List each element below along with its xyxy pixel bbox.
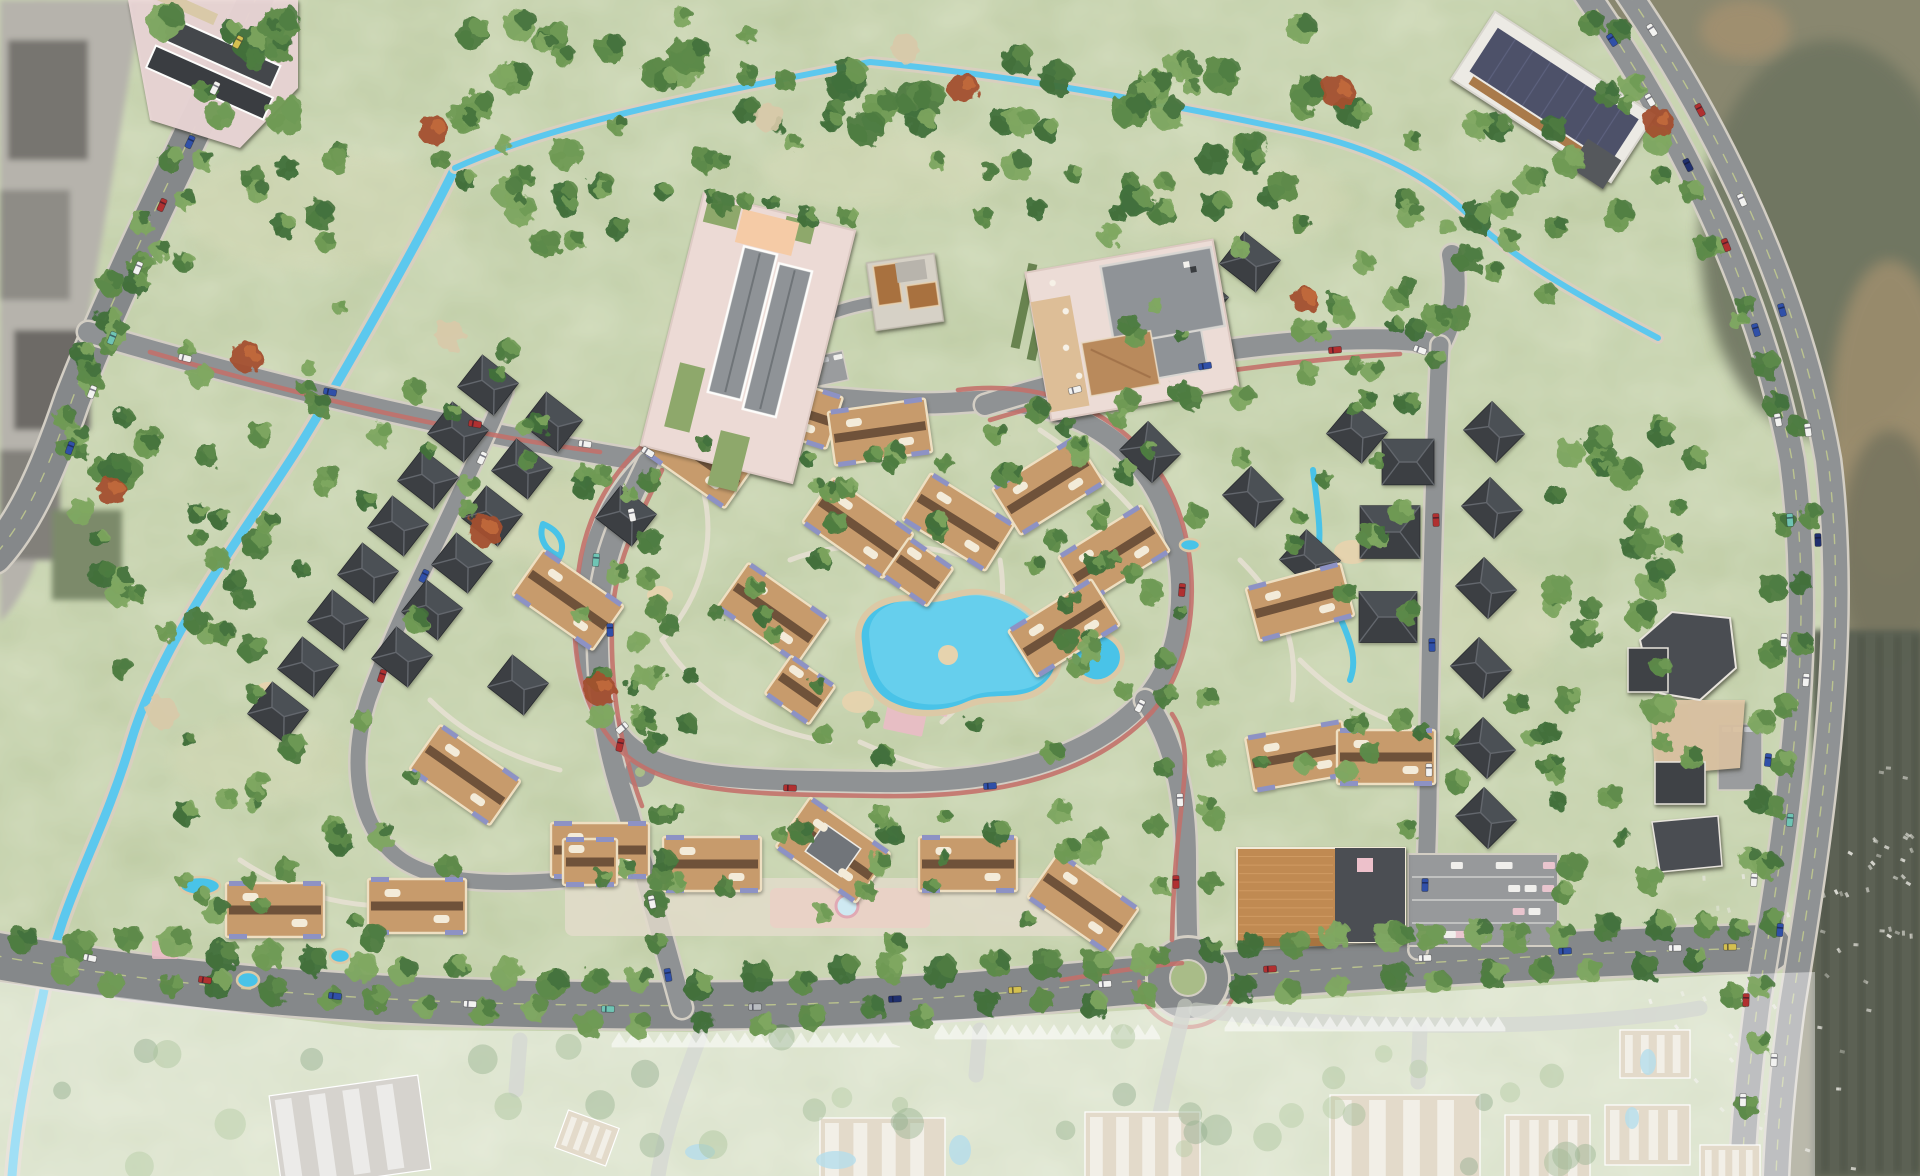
tree-crown: [1114, 470, 1125, 481]
car-body: [1786, 513, 1793, 526]
tree-crown: [1397, 610, 1409, 622]
tree-crown: [1360, 398, 1369, 407]
tree-crown: [1484, 270, 1494, 280]
parking-stall-car: [1543, 862, 1555, 869]
tree-crown: [1537, 292, 1547, 302]
tree-crown: [1645, 923, 1660, 938]
tree-crown: [1680, 190, 1692, 202]
car-body: [1802, 673, 1810, 687]
car: [1178, 583, 1186, 597]
tree-crown: [1024, 408, 1036, 420]
tree-crown: [709, 612, 717, 620]
tree-crown: [1752, 362, 1766, 376]
tree-crown: [369, 833, 382, 846]
tree-crown: [810, 484, 817, 491]
car: [578, 440, 592, 448]
tree-crown: [1337, 108, 1352, 123]
tree-crown: [197, 454, 209, 466]
car-body: [607, 623, 614, 636]
tree-crown: [1480, 972, 1494, 986]
car: [748, 1004, 761, 1011]
car-body: [1173, 875, 1180, 888]
tree-crown: [1172, 610, 1180, 618]
tree-crown: [1625, 517, 1637, 529]
tree-crown: [264, 45, 278, 59]
tree-crown: [1644, 139, 1658, 153]
tree-crown: [1545, 493, 1555, 503]
apartment-corner-trim: [445, 877, 463, 882]
tree-crown: [115, 417, 125, 427]
car-body: [1771, 1053, 1778, 1066]
tree-crown: [639, 478, 651, 490]
tree-crown: [908, 119, 922, 133]
car-windshield: [1787, 817, 1793, 818]
tree-crown: [1028, 564, 1037, 573]
tree-crown: [882, 462, 890, 470]
checker-tile: [1190, 266, 1197, 273]
car: [607, 623, 614, 636]
tree-crown: [609, 123, 618, 132]
tree-crown: [1040, 75, 1057, 92]
tree-crown: [1335, 591, 1346, 602]
tree-crown: [113, 667, 123, 677]
tree-crown: [1721, 994, 1733, 1006]
tree-crown: [1238, 944, 1251, 957]
car-windshield: [1202, 363, 1203, 369]
tree-crown: [207, 952, 223, 968]
tree-crown: [361, 935, 374, 948]
tree-crown: [754, 613, 764, 623]
tree-crown: [1740, 857, 1751, 868]
tree-crown: [1347, 408, 1355, 416]
apartment-corner-trim: [628, 821, 646, 826]
tree-crown: [1557, 696, 1570, 709]
villa-pool: [237, 972, 259, 988]
tree-crown: [1196, 696, 1207, 707]
tree-crown: [1119, 322, 1129, 332]
apartment-corner-trim: [554, 821, 572, 826]
context-tree-row: [1894, 636, 1901, 1172]
apartment-corner-trim: [566, 882, 584, 887]
tree-crown: [1078, 850, 1091, 863]
car: [1740, 1093, 1747, 1106]
apartment-roof-band: [666, 860, 758, 869]
car: [1328, 346, 1342, 354]
tree-crown: [573, 613, 582, 622]
tree-crown: [193, 158, 203, 168]
tree-crown: [1694, 923, 1706, 935]
tree-crown: [537, 981, 553, 997]
car: [1764, 753, 1772, 767]
tree-crown: [1438, 226, 1446, 234]
tree-crown: [1523, 735, 1532, 744]
tree-crown: [1045, 538, 1056, 549]
tree-crown: [1092, 522, 1100, 530]
tree-crown: [704, 195, 711, 202]
tree-crown: [1613, 836, 1622, 845]
tree-crown: [646, 606, 657, 617]
tree-crown: [583, 978, 596, 991]
tree-crown: [491, 373, 499, 381]
tree-crown: [177, 878, 185, 886]
apartment-roof-band: [1340, 753, 1432, 762]
tree-crown: [56, 445, 67, 456]
tree-crown: [1571, 630, 1586, 645]
tree-crown: [457, 179, 467, 189]
tree-crown: [1594, 91, 1607, 104]
tree-crown: [1062, 847, 1072, 857]
tree-crown: [1750, 720, 1763, 733]
car-body: [1433, 513, 1440, 526]
tree-crown: [1654, 740, 1663, 749]
tree-crown: [471, 1010, 485, 1024]
tree-crown: [390, 969, 404, 983]
car: [1802, 673, 1810, 687]
tree-crown: [1749, 1041, 1760, 1052]
apartment-vent: [1403, 766, 1419, 774]
autumn-tree-crown: [1336, 81, 1350, 95]
tree-crown: [1395, 933, 1405, 943]
tree-crown: [1664, 541, 1674, 551]
tree-crown: [1292, 89, 1309, 106]
tree-crown: [1333, 306, 1343, 316]
tree-crown: [1649, 431, 1662, 444]
tree-crown: [242, 541, 257, 556]
tree-crown: [1255, 761, 1262, 768]
apartment-corner-trim: [740, 835, 758, 840]
tree-crown: [257, 521, 269, 533]
blossom-tree: [755, 103, 785, 133]
tree-crown: [862, 1005, 874, 1017]
tree-crown: [811, 683, 819, 691]
tree-crown: [207, 113, 220, 126]
tree-crown: [1388, 509, 1401, 522]
tree-crown: [243, 878, 250, 885]
car: [1776, 923, 1783, 936]
tree-crown: [357, 499, 367, 509]
big-villa: [1382, 439, 1434, 485]
tree-crown: [1558, 452, 1571, 465]
apartment-corner-trim: [566, 837, 584, 842]
tree-crown: [1231, 248, 1240, 257]
tree-crown: [1599, 794, 1612, 807]
tree-crown: [190, 375, 202, 387]
tree-crown: [1546, 224, 1557, 235]
tree-crown: [1043, 751, 1054, 762]
tree-crown: [1750, 985, 1761, 996]
tree-crown: [1346, 364, 1355, 373]
tree-crown: [505, 22, 521, 38]
tree-crown: [814, 732, 824, 742]
tree-crown: [1242, 159, 1254, 171]
tree-crown: [594, 877, 604, 887]
tree-crown: [1547, 774, 1556, 783]
tree-crown: [1652, 665, 1662, 675]
context-parked-car: [1702, 876, 1705, 881]
tree-crown: [191, 536, 199, 544]
tree-crown: [911, 1015, 923, 1027]
car-body: [1740, 1093, 1747, 1106]
car-body: [1178, 583, 1186, 597]
tree-crown: [353, 719, 364, 730]
tree-crown: [158, 631, 168, 641]
tree-crown: [877, 964, 892, 979]
tree-crown: [1541, 126, 1554, 139]
parking-stall-car: [1451, 862, 1463, 869]
tree-crown: [453, 119, 466, 132]
tree-crown: [280, 745, 294, 759]
autumn-tree-crown: [483, 519, 497, 533]
tree-crown: [306, 402, 318, 414]
tree-crown: [195, 90, 206, 101]
tree-crown: [1100, 233, 1111, 244]
tree-crown: [347, 919, 354, 926]
car-body: [1668, 945, 1681, 952]
blossom-tree: [435, 320, 465, 350]
tree-crown: [1376, 933, 1391, 948]
tree-crown: [254, 904, 262, 912]
masterplan-map-canvas: [0, 0, 1920, 1176]
tree-crown: [223, 580, 235, 592]
tree-crown: [1384, 297, 1396, 309]
tree-crown: [10, 937, 24, 951]
car-body: [463, 1000, 476, 1007]
context-photo-building: [0, 190, 70, 300]
tree-crown: [1085, 562, 1095, 572]
apartment-block-tw: [226, 881, 324, 939]
context-parked-car: [1886, 766, 1891, 769]
tree-crown: [798, 215, 808, 225]
tree-crown: [1005, 471, 1015, 481]
tree-crown: [691, 1020, 702, 1031]
tree-crown: [1019, 920, 1027, 928]
tree-crown: [1321, 933, 1335, 947]
car-body: [328, 992, 342, 1000]
context-tree-row: [1876, 636, 1883, 1172]
tree-crown: [554, 54, 564, 64]
car-body: [1422, 878, 1429, 891]
car: [1558, 948, 1571, 955]
tree-crown: [1603, 213, 1619, 229]
tree-crown: [833, 75, 851, 93]
tree-crown: [1056, 637, 1069, 650]
tree-crown: [423, 450, 430, 457]
car-body: [1177, 793, 1184, 806]
apartment-corner-trim: [229, 934, 247, 939]
tree-crown: [749, 1022, 762, 1035]
car-body: [1328, 346, 1342, 354]
tree-crown: [607, 573, 619, 585]
apartment-corner-trim: [596, 837, 614, 842]
tree-crown: [551, 151, 567, 167]
tree-crown: [124, 282, 136, 294]
kindergarten-court: [895, 259, 927, 283]
tree-crown: [1291, 223, 1301, 233]
tree-crown: [713, 160, 722, 169]
tree-crown: [160, 939, 176, 955]
apartment-corner-trim: [371, 877, 389, 882]
tree-crown: [362, 996, 376, 1010]
tree-crown: [52, 968, 66, 982]
tree-crown: [249, 432, 262, 445]
car: [1668, 945, 1681, 952]
tree-crown: [1126, 335, 1137, 346]
tree-crown: [217, 796, 228, 807]
tree-crown: [1181, 68, 1191, 78]
tree-crown: [1345, 722, 1352, 729]
tree-crown: [1292, 517, 1299, 524]
tree-crown: [1081, 1003, 1095, 1017]
tree-crown: [267, 112, 286, 131]
tree-crown: [1730, 319, 1739, 328]
car: [592, 553, 600, 567]
tree-crown: [1760, 651, 1773, 664]
car-windshield: [1179, 588, 1185, 589]
tree-crown: [557, 204, 568, 215]
tree-crown: [792, 980, 804, 992]
tree-crown: [1790, 642, 1802, 654]
tree-crown: [136, 444, 148, 456]
tree-crown: [935, 856, 942, 863]
car-body: [983, 782, 996, 789]
tree-crown: [275, 868, 287, 880]
tree-crown: [621, 493, 629, 501]
tree-crown: [831, 966, 846, 981]
tree-crown: [871, 755, 881, 765]
tree-crown: [987, 432, 998, 443]
tree-crown: [128, 591, 137, 600]
car: [1771, 1053, 1778, 1066]
tree-crown: [638, 540, 651, 553]
tree-crown: [495, 142, 504, 151]
tree-crown: [937, 815, 944, 822]
tree-crown: [1413, 730, 1422, 739]
tree-crown: [967, 722, 975, 730]
tree-crown: [1637, 581, 1652, 596]
tree-crown: [444, 411, 453, 420]
tree-crown: [928, 159, 937, 168]
tree-crown: [1183, 86, 1192, 95]
tree-crown: [239, 645, 253, 659]
tree-crown: [1082, 962, 1098, 978]
tree-crown: [517, 425, 525, 433]
tree-crown: [1580, 606, 1590, 616]
tree-crown: [1175, 335, 1182, 342]
tree-crown: [1121, 197, 1137, 213]
tree-crown: [645, 740, 656, 751]
tree-crown: [1003, 57, 1018, 72]
tree-crown: [247, 805, 254, 812]
tree-crown: [1622, 545, 1634, 557]
car: [1723, 944, 1736, 951]
tree-crown: [1200, 949, 1212, 961]
tree-crown: [628, 642, 639, 653]
autumn-tree-crown: [110, 481, 124, 495]
tree-crown: [1369, 458, 1377, 466]
tree-crown: [1764, 403, 1777, 416]
car-body: [578, 440, 592, 448]
tree-crown: [682, 51, 696, 65]
tree-crown: [333, 306, 340, 313]
tree-crown: [1035, 127, 1047, 139]
tree-crown: [457, 30, 474, 47]
car: [1008, 986, 1021, 993]
tree-crown: [1790, 582, 1801, 593]
tree-crown: [1292, 328, 1304, 340]
tree-crown: [1426, 356, 1436, 366]
tree-crown: [161, 983, 172, 994]
tree-crown: [314, 485, 323, 494]
tree-crown: [1363, 368, 1374, 379]
tree-crown: [1145, 824, 1156, 835]
tree-crown: [765, 632, 774, 641]
tree-crown: [77, 371, 90, 384]
tree-crown: [404, 618, 417, 631]
checker-tile: [1183, 261, 1190, 268]
tree-crown: [1549, 933, 1562, 946]
context-tree-row: [1912, 636, 1919, 1172]
tree-crown: [324, 158, 336, 170]
villa-pool: [1180, 539, 1200, 551]
tree-crown: [107, 591, 120, 604]
commercial-trapezoid-roof: [1652, 816, 1722, 872]
apartment-corner-trim: [740, 888, 758, 893]
tree-crown: [1153, 955, 1163, 965]
tree-crown: [1232, 457, 1242, 467]
tree-crown: [937, 462, 945, 470]
tree-crown: [1293, 108, 1302, 117]
tree-crown: [1787, 424, 1797, 434]
tree-crown: [634, 718, 646, 730]
tree-crown: [1066, 172, 1074, 180]
context-parked-car: [1902, 931, 1905, 936]
tree-crown: [1502, 935, 1517, 950]
tree-crown: [1671, 506, 1680, 515]
parking-stall-car: [1501, 862, 1513, 869]
car-windshield: [665, 972, 671, 973]
tree-crown: [158, 156, 171, 169]
tree-crown: [369, 431, 381, 443]
tree-crown: [1318, 479, 1326, 487]
tree-crown: [597, 46, 611, 60]
tree-crown: [1543, 588, 1559, 604]
car: [888, 995, 901, 1002]
tree-crown: [324, 830, 336, 842]
tree-crown: [532, 240, 546, 254]
car-windshield: [1805, 427, 1811, 428]
car-body: [748, 1004, 761, 1011]
tree-crown: [405, 774, 412, 781]
tree-crown: [643, 674, 655, 686]
car: [1433, 513, 1440, 526]
context-parked-car: [1853, 943, 1858, 946]
car: [463, 1000, 476, 1007]
tree-crown: [538, 43, 548, 53]
tree-crown: [715, 885, 725, 895]
tree-crown: [1080, 647, 1092, 659]
tree-crown: [1109, 211, 1118, 220]
car: [1815, 533, 1822, 546]
tree-crown: [1399, 827, 1408, 836]
tree-crown: [220, 29, 231, 40]
tree-crown: [862, 718, 871, 727]
tree-crown: [825, 521, 837, 533]
tree-crown: [1328, 985, 1339, 996]
tree-crown: [1297, 372, 1308, 383]
tree-crown: [99, 282, 112, 295]
tree-crown: [745, 587, 755, 597]
tree-crown: [1515, 178, 1529, 192]
